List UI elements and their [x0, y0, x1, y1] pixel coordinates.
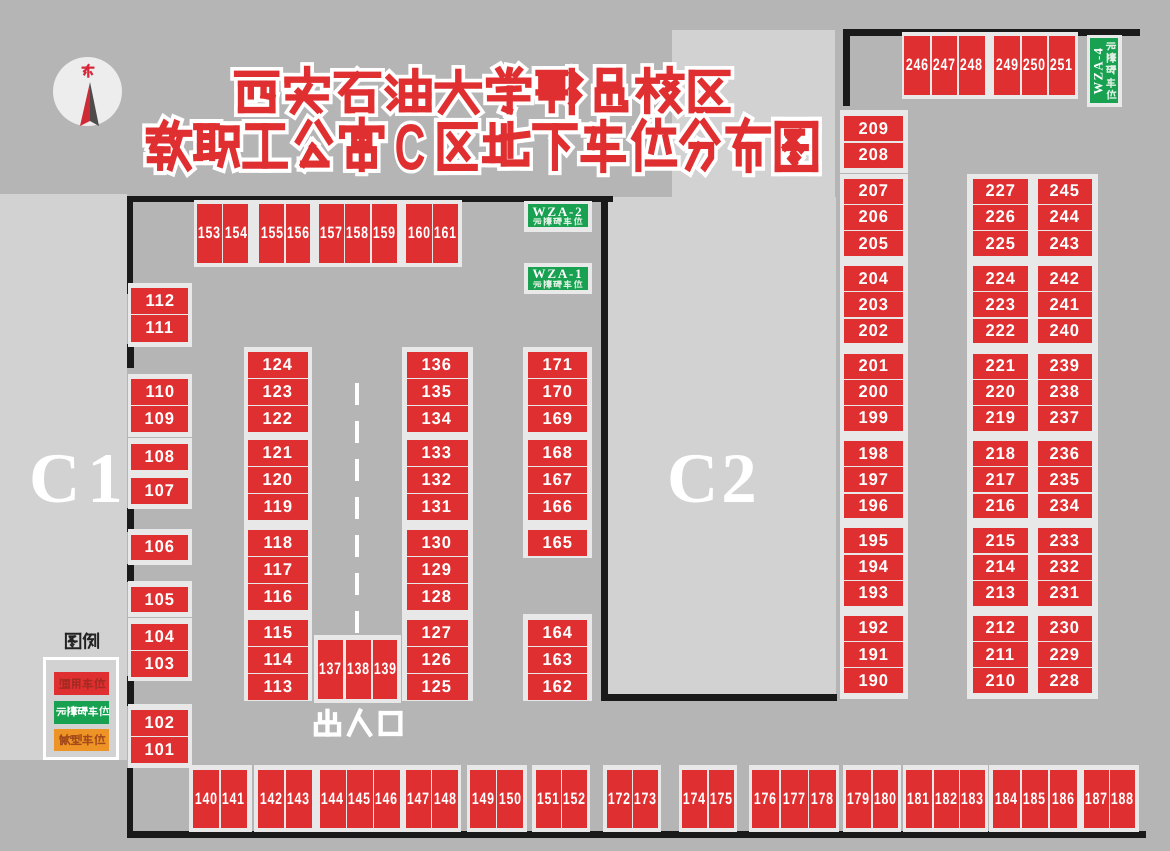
svg-text:C: C: [395, 110, 426, 183]
svg-text:C2: C2: [667, 440, 760, 518]
svg-text:C1: C1: [29, 440, 130, 518]
svg-text:WZA-4: WZA-4: [1092, 47, 1106, 95]
